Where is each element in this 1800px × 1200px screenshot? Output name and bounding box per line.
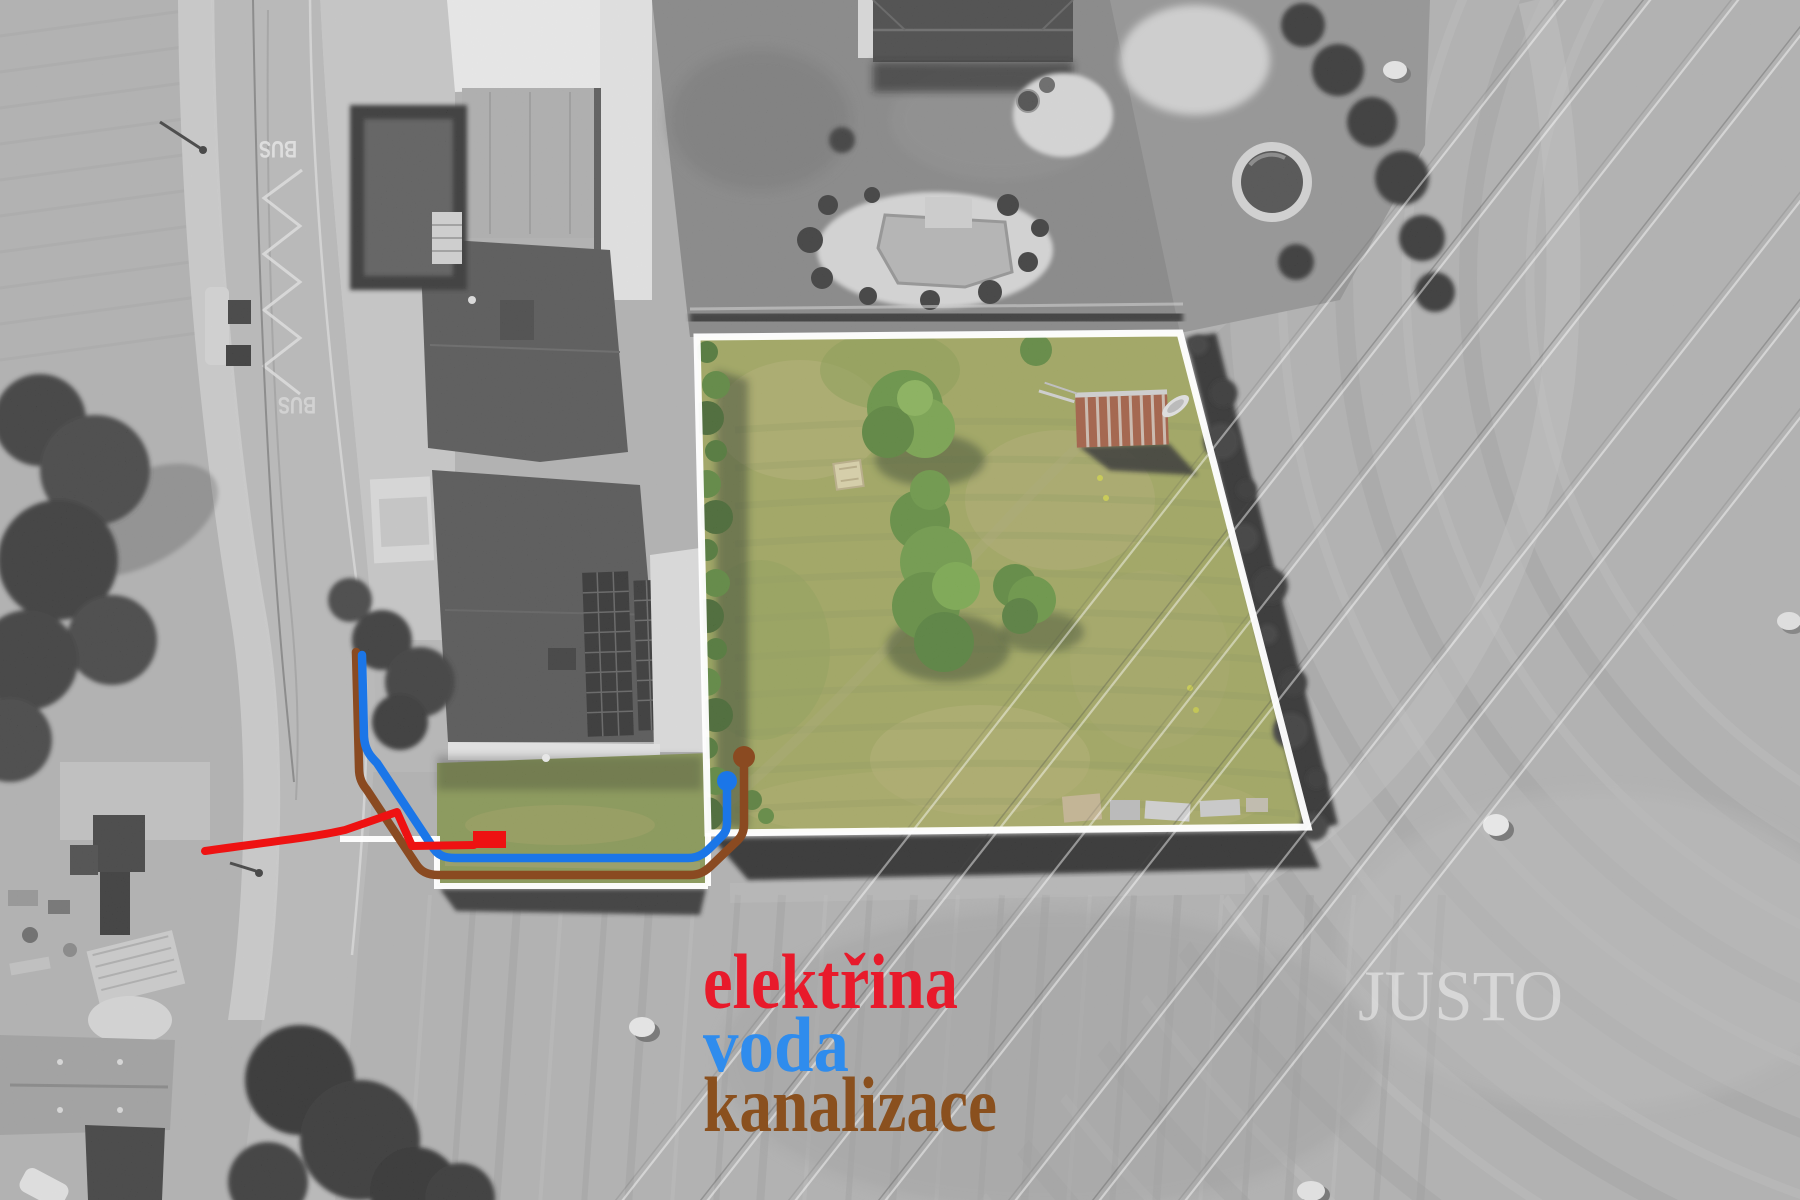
- watermark-justo: JUSTO: [1358, 956, 1563, 1036]
- electricity-box: [473, 831, 506, 848]
- legend-sewer-label: kanalizace: [703, 1061, 997, 1148]
- water-endpoint: [717, 771, 737, 791]
- aerial-photo: BUS BUS: [0, 0, 1800, 1200]
- sewer-endpoint: [733, 746, 755, 768]
